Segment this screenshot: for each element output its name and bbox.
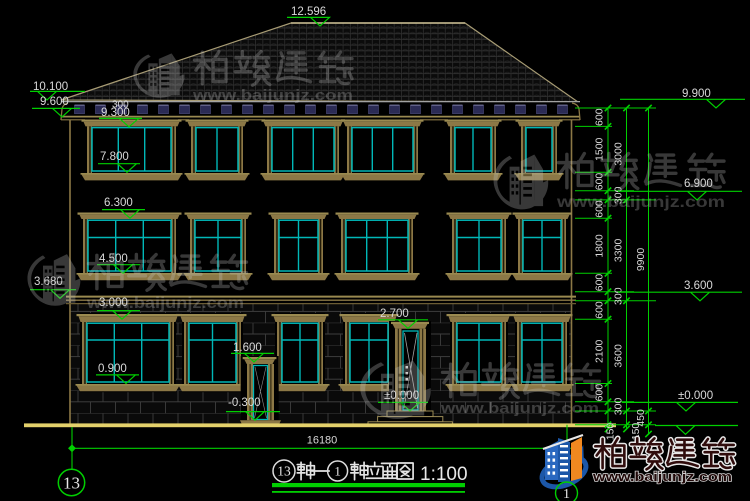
svg-text:9900: 9900 [635,248,647,272]
svg-text:1: 1 [563,487,570,501]
svg-text:0.900: 0.900 [98,363,127,375]
svg-text:12.596: 12.596 [291,6,326,18]
svg-text:300: 300 [613,287,625,305]
svg-text:3.600: 3.600 [684,280,713,292]
svg-text:13: 13 [63,474,80,493]
svg-text:600: 600 [594,108,606,126]
svg-text:2.700: 2.700 [380,308,409,320]
svg-text:www.baijunjz.com: www.baijunjz.com [440,400,599,417]
svg-text:300: 300 [112,100,129,111]
svg-text:150: 150 [605,423,617,441]
svg-text:1: 1 [334,464,341,479]
svg-text:1500: 1500 [594,137,606,161]
svg-text:6.300: 6.300 [104,197,133,209]
svg-text:600: 600 [594,301,606,319]
svg-text:9.600: 9.600 [40,96,69,108]
svg-text:www.baijunjz.com: www.baijunjz.com [192,87,353,104]
svg-text:2100: 2100 [594,339,606,363]
svg-text:www.baijunjz.com: www.baijunjz.com [86,295,244,312]
svg-text:-0.300: -0.300 [228,397,261,409]
svg-text:7.800: 7.800 [100,151,129,163]
svg-text:600: 600 [594,274,606,292]
svg-text:1:100: 1:100 [420,464,468,485]
svg-text:16180: 16180 [307,435,338,447]
svg-text:1.600: 1.600 [233,342,262,354]
svg-text:www.baijunjz.com: www.baijunjz.com [556,194,725,211]
svg-text:9.900: 9.900 [682,88,711,100]
svg-text:1800: 1800 [594,234,606,258]
svg-text:300: 300 [613,397,625,415]
svg-text:3600: 3600 [613,344,625,368]
svg-text:www.baijunjz.com: www.baijunjz.com [592,469,732,484]
svg-text:3300: 3300 [613,239,625,263]
svg-text:13: 13 [277,464,291,479]
svg-text:±0.000: ±0.000 [678,390,713,402]
